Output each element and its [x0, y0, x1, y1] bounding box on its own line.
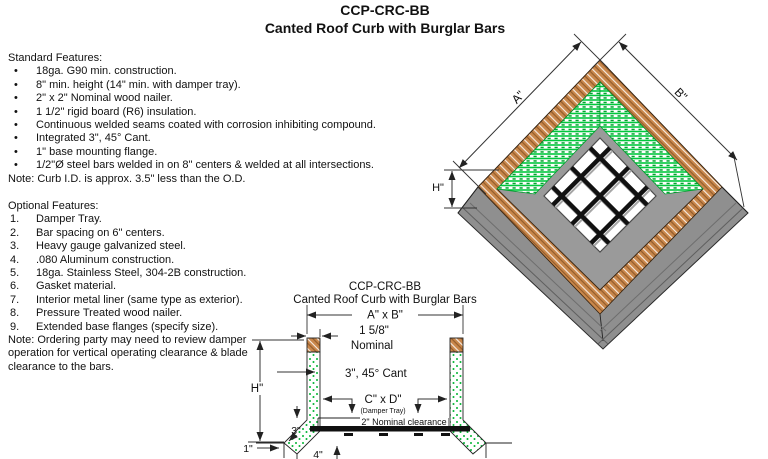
feature-item: •1" base mounting flange.: [8, 146, 388, 159]
dimension-h-iso-label: H": [432, 182, 444, 194]
feature-text: Bar spacing on 6" centers.: [36, 227, 165, 240]
wood-nailer-right: [450, 338, 463, 352]
cant-label: 3", 45° Cant: [345, 368, 408, 380]
damper-tray-label: (Damper Tray): [360, 408, 405, 415]
bullet-icon: •: [8, 79, 36, 92]
feature-item: 3.Heavy gauge galvanized steel.: [8, 240, 388, 253]
feature-text: Damper Tray.: [36, 213, 102, 226]
dimension-4-label: 4": [313, 449, 323, 459]
bullet-icon: •: [8, 65, 36, 78]
section-right-wall: [450, 338, 512, 458]
feature-item: 4..080 Aluminum construction.: [8, 254, 388, 267]
page-title-line1: CCP-CRC-BB: [160, 2, 610, 20]
feature-text: Interior metal liner (same type as exter…: [36, 294, 243, 307]
feature-item: •1 1/2" rigid board (R6) insulation.: [8, 106, 388, 119]
feature-text: 1 1/2" rigid board (R6) insulation.: [36, 106, 196, 119]
section-left-wall: [256, 338, 320, 459]
feature-item: 1.Damper Tray.: [8, 213, 388, 226]
item-number: 6.: [8, 280, 36, 293]
bullet-icon: •: [8, 92, 36, 105]
dimension-cxd-label: C" x D": [365, 394, 402, 406]
feature-item: •Continuous welded seams coated with cor…: [8, 119, 388, 132]
bullet-icon: •: [8, 119, 36, 132]
section-title-line1: CCP-CRC-BB: [349, 281, 422, 293]
dimension-a-label: A": [509, 88, 528, 107]
feature-text: Continuous welded seams coated with corr…: [36, 119, 376, 132]
bullet-icon: •: [8, 159, 36, 172]
feature-text: Pressure Treated wood nailer.: [36, 307, 182, 320]
damper-tray: 2" Nominal clearance: [310, 417, 470, 436]
feature-text: Gasket material.: [36, 280, 116, 293]
feature-item: •18ga. G90 min. construction.: [8, 65, 388, 78]
feature-text: 8" min. height (14" min. with damper tra…: [36, 79, 241, 92]
section-title-line2: Canted Roof Curb with Burglar Bars: [293, 294, 477, 306]
dimension-cxd: C" x D" (Damper Tray): [323, 394, 447, 415]
insulated-wall-right: [450, 352, 486, 454]
feature-item: 2.Bar spacing on 6" centers.: [8, 227, 388, 240]
dimension-1: 1": [243, 443, 279, 455]
bullet-icon: •: [8, 106, 36, 119]
clearance-label: 2" Nominal clearance: [361, 417, 446, 427]
feature-text: .080 Aluminum construction.: [36, 254, 174, 267]
datasheet-page: CCP-CRC-BB Canted Roof Curb with Burglar…: [0, 0, 768, 459]
cant-callout: 3", 45° Cant: [277, 368, 408, 380]
item-number: 7.: [8, 294, 36, 307]
dimension-axb-label: A" x B": [367, 310, 403, 322]
standard-features-heading: Standard Features:: [8, 52, 388, 65]
standard-features-note: Note: Curb I.D. is approx. 3.5" less tha…: [8, 173, 388, 186]
feature-text: 18ga. Stainless Steel, 304-2B constructi…: [36, 267, 246, 280]
insulated-wall-left: [284, 352, 320, 454]
item-number: 8.: [8, 307, 36, 320]
feature-item: •2" x 2" Nominal wood nailer.: [8, 92, 388, 105]
item-number: 5.: [8, 267, 36, 280]
standard-features-list: Standard Features: •18ga. G90 min. const…: [8, 52, 388, 186]
feature-text: Extended base flanges (specify size).: [36, 321, 218, 334]
item-number: 3.: [8, 240, 36, 253]
dimension-4: 4": [313, 446, 337, 459]
feature-text: Integrated 3", 45° Cant.: [36, 132, 151, 145]
feature-item: •1/2"Ø steel bars welded in on 8" center…: [8, 159, 388, 172]
dimension-1-label: 1": [243, 443, 253, 455]
item-number: 1.: [8, 213, 36, 226]
dimension-3-label: 3": [291, 425, 301, 437]
dimension-nailer: 1 5/8" Nominal: [291, 325, 393, 352]
section-drawing: CCP-CRC-BB Canted Roof Curb with Burglar…: [235, 276, 525, 459]
bullet-icon: •: [8, 132, 36, 145]
bullet-icon: •: [8, 146, 36, 159]
dimension-nailer-label2: Nominal: [351, 340, 393, 352]
item-number: 4.: [8, 254, 36, 267]
dimension-3: 3": [289, 406, 301, 441]
feature-text: 1" base mounting flange.: [36, 146, 157, 159]
optional-features-heading: Optional Features:: [8, 200, 388, 213]
item-number: 2.: [8, 227, 36, 240]
wood-nailer-left: [307, 338, 320, 352]
dimension-b-label: B": [672, 85, 691, 104]
item-number: 9.: [8, 321, 36, 334]
feature-item: •8" min. height (14" min. with damper tr…: [8, 79, 388, 92]
feature-text: Heavy gauge galvanized steel.: [36, 240, 186, 253]
feature-item: •Integrated 3", 45° Cant.: [8, 132, 388, 145]
dimension-nailer-label1: 1 5/8": [359, 325, 389, 337]
feature-text: 2" x 2" Nominal wood nailer.: [36, 92, 173, 105]
feature-text: 1/2"Ø steel bars welded in on 8" centers…: [36, 159, 374, 172]
feature-text: 18ga. G90 min. construction.: [36, 65, 177, 78]
dimension-h-label: H": [251, 383, 263, 395]
